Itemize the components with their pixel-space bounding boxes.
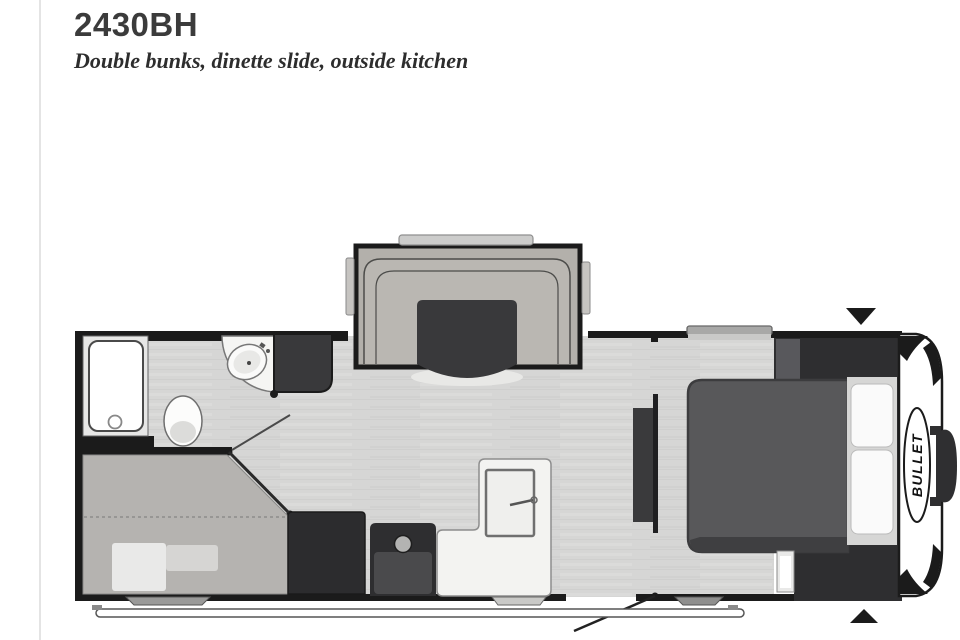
svg-text:BULLET: BULLET: [909, 433, 925, 497]
